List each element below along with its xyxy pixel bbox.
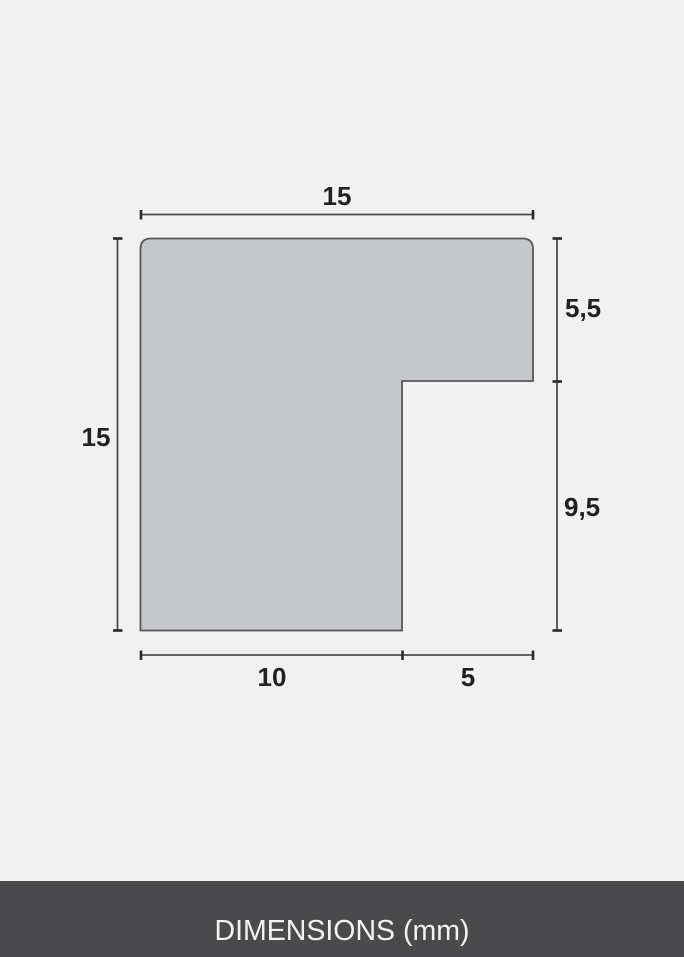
svg-text:9,5: 9,5 bbox=[564, 492, 600, 522]
svg-text:15: 15 bbox=[323, 181, 352, 211]
svg-text:5: 5 bbox=[461, 662, 475, 692]
svg-text:DIMENSIONS (mm): DIMENSIONS (mm) bbox=[215, 915, 470, 947]
svg-text:5,5: 5,5 bbox=[565, 293, 601, 323]
svg-text:10: 10 bbox=[258, 662, 287, 692]
svg-text:15: 15 bbox=[82, 422, 111, 452]
